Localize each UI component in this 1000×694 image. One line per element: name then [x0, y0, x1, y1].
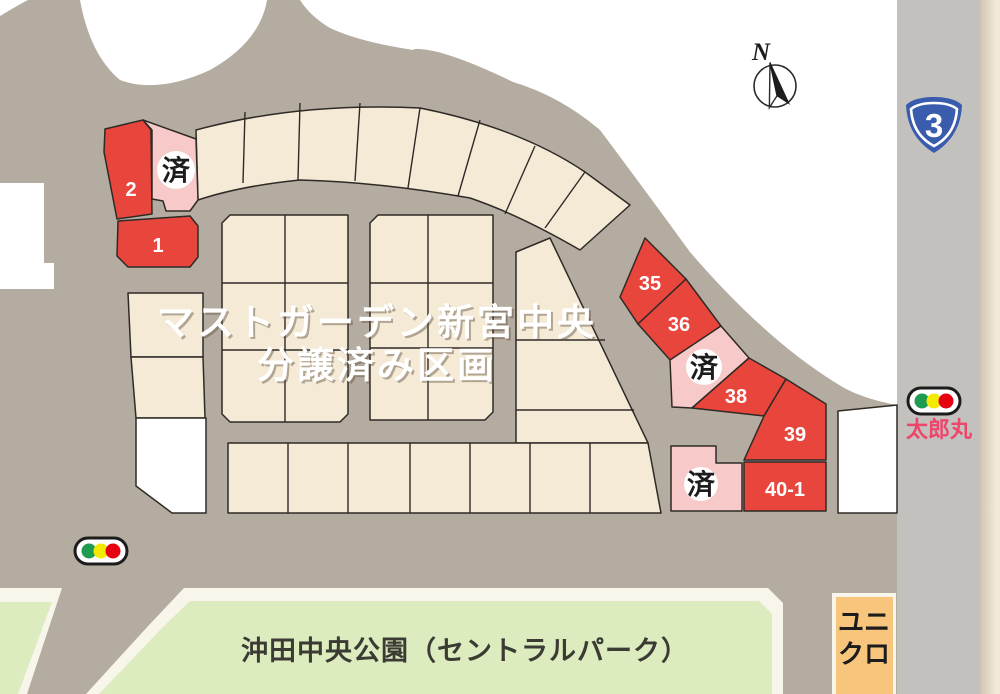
- lot-strip-bottom: [228, 443, 661, 513]
- crossing-name-label: 太郎丸: [906, 417, 973, 442]
- lot-block-left-2: [131, 357, 205, 418]
- park-name-label: 沖田中央公園（セントラルパーク）: [241, 636, 689, 666]
- sold-mark-label: 済: [687, 469, 716, 500]
- white-area-left-edge-1: [0, 183, 44, 263]
- sold-mark-label: 済: [162, 155, 191, 186]
- store-name-line1: ユニ: [838, 607, 890, 637]
- white-lot-right: [838, 405, 897, 513]
- title-line1: マストガーデン新宮中央: [157, 301, 597, 343]
- compass-north-label: N: [751, 39, 771, 66]
- title-line2: 分譲済み区画: [257, 345, 497, 386]
- lot-38-label: 38: [725, 386, 747, 408]
- site-map: 沖田中央公園（セントラルパーク） ユニ クロ: [0, 0, 1000, 694]
- margin-shadow: [980, 0, 996, 694]
- lot-40-1-label: 40-1: [765, 479, 805, 501]
- uniqlo-store: ユニ クロ: [832, 593, 896, 694]
- traffic-light-icon: [908, 388, 960, 414]
- sold-mark-label: 済: [690, 352, 719, 383]
- lot-39-label: 39: [784, 424, 806, 446]
- traffic-light-icon: [75, 538, 127, 564]
- store-name-line2: クロ: [838, 639, 890, 669]
- route-number-label: 3: [925, 107, 943, 144]
- lot-1-label: 1: [152, 235, 163, 257]
- lot-36-label: 36: [668, 314, 690, 336]
- white-area-left-edge-2: [0, 263, 54, 289]
- lot-35-label: 35: [639, 273, 661, 295]
- lot-2-label: 2: [125, 179, 136, 201]
